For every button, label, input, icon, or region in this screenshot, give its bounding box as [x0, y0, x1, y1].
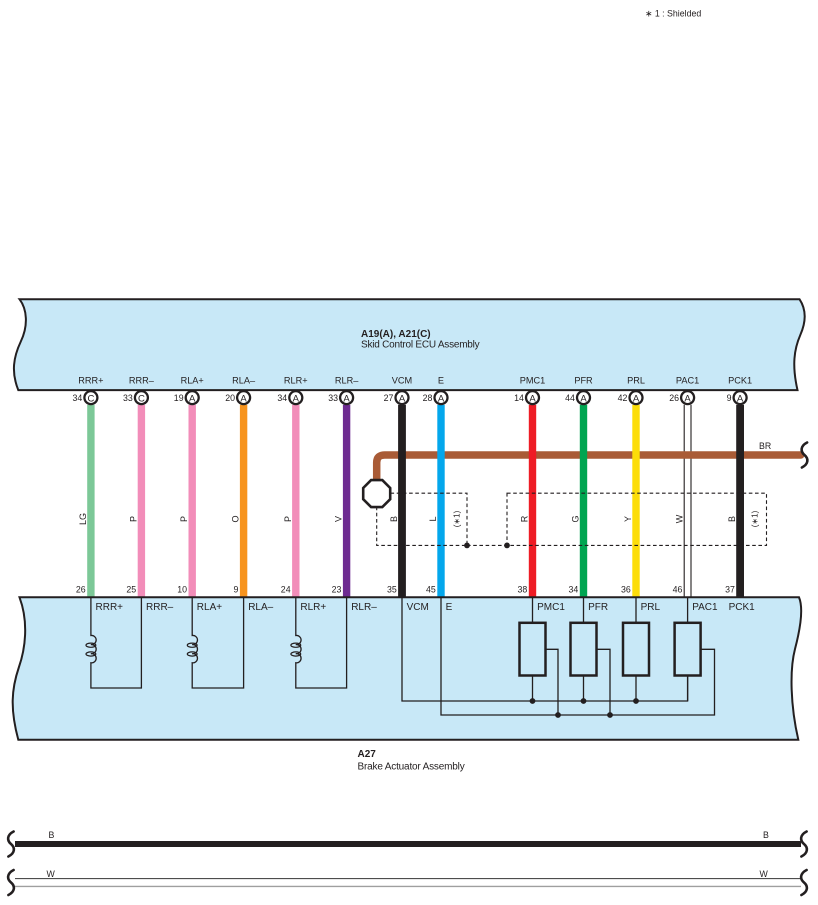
svg-text:Y: Y — [623, 516, 633, 522]
svg-text:PRL: PRL — [627, 376, 645, 386]
svg-text:37: 37 — [725, 584, 735, 594]
svg-text:9: 9 — [727, 393, 732, 403]
svg-text:A: A — [189, 393, 196, 404]
svg-text:24: 24 — [281, 584, 291, 594]
svg-text:35: 35 — [387, 584, 397, 594]
svg-text:RRR–: RRR– — [129, 376, 155, 386]
svg-text:V: V — [334, 516, 344, 522]
svg-text:RRR+: RRR+ — [78, 376, 103, 386]
svg-text:O: O — [231, 515, 241, 522]
svg-text:A: A — [684, 393, 691, 404]
svg-text:44: 44 — [565, 393, 575, 403]
svg-text:38: 38 — [518, 584, 528, 594]
svg-text:RLR–: RLR– — [351, 602, 377, 613]
svg-text:34: 34 — [569, 584, 579, 594]
svg-text:P: P — [179, 516, 189, 522]
svg-text:RLA+: RLA+ — [181, 376, 204, 386]
svg-text:9: 9 — [233, 584, 238, 594]
svg-text:PFR: PFR — [574, 376, 593, 386]
svg-text:A: A — [737, 393, 744, 404]
svg-text:28: 28 — [423, 393, 433, 403]
svg-text:VCM: VCM — [407, 602, 429, 613]
svg-text:W: W — [675, 514, 685, 523]
svg-text:W: W — [760, 869, 769, 879]
svg-text:C: C — [138, 393, 145, 404]
svg-text:RLR+: RLR+ — [300, 602, 326, 613]
svg-text:RLA–: RLA– — [248, 602, 273, 613]
svg-text:PRL: PRL — [641, 602, 661, 613]
svg-text:R: R — [520, 515, 530, 522]
svg-text:26: 26 — [669, 393, 679, 403]
svg-text:RRR+: RRR+ — [96, 602, 124, 613]
svg-text:PAC1: PAC1 — [676, 376, 699, 386]
svg-text:PAC1: PAC1 — [692, 602, 718, 613]
svg-text:B: B — [763, 830, 769, 840]
svg-text:RLA+: RLA+ — [197, 602, 222, 613]
svg-text:10: 10 — [177, 584, 187, 594]
svg-text:P: P — [283, 516, 293, 522]
svg-text:42: 42 — [618, 393, 628, 403]
svg-text:45: 45 — [426, 584, 436, 594]
svg-text:A: A — [438, 393, 445, 404]
svg-text:19: 19 — [174, 393, 184, 403]
svg-text:25: 25 — [126, 584, 136, 594]
svg-text:A: A — [293, 393, 300, 404]
svg-text:A: A — [240, 393, 247, 404]
svg-text:A19(A), A21(C): A19(A), A21(C) — [361, 329, 431, 340]
svg-text:14: 14 — [514, 393, 524, 403]
svg-text:RRR–: RRR– — [146, 602, 174, 613]
svg-text:27: 27 — [384, 393, 394, 403]
svg-text:E: E — [438, 376, 444, 386]
svg-text:A: A — [580, 393, 587, 404]
svg-text:RLR–: RLR– — [335, 376, 359, 386]
svg-text:PMC1: PMC1 — [537, 602, 565, 613]
svg-text:PCK1: PCK1 — [729, 602, 756, 613]
svg-text:L: L — [428, 516, 438, 521]
svg-text:G: G — [571, 515, 581, 522]
svg-text:A: A — [399, 393, 406, 404]
svg-text:A27: A27 — [358, 749, 377, 760]
svg-text:23: 23 — [332, 584, 342, 594]
svg-text:46: 46 — [673, 584, 683, 594]
svg-text:PCK1: PCK1 — [728, 376, 752, 386]
svg-text:PMC1: PMC1 — [520, 376, 546, 386]
svg-text:B: B — [49, 830, 55, 840]
svg-text:A: A — [633, 393, 640, 404]
svg-text:VCM: VCM — [392, 376, 412, 386]
svg-text:∗ 1 : Shielded: ∗ 1 : Shielded — [645, 9, 701, 19]
svg-text:33: 33 — [123, 393, 133, 403]
svg-text:B: B — [389, 516, 399, 522]
svg-text:C: C — [87, 393, 94, 404]
svg-text:RLR+: RLR+ — [284, 376, 308, 386]
svg-text:34: 34 — [277, 393, 287, 403]
svg-text:PFR: PFR — [588, 602, 608, 613]
svg-text:33: 33 — [328, 393, 338, 403]
svg-text:26: 26 — [76, 584, 86, 594]
svg-text:B: B — [727, 516, 737, 522]
svg-text:20: 20 — [225, 393, 235, 403]
svg-text:Skid Control ECU Assembly: Skid Control ECU Assembly — [361, 340, 480, 351]
svg-text:A: A — [343, 393, 350, 404]
svg-text:A: A — [529, 393, 536, 404]
svg-text:RLA–: RLA– — [232, 376, 256, 386]
svg-text:(∗1): (∗1) — [453, 510, 462, 527]
svg-text:34: 34 — [73, 393, 83, 403]
svg-text:E: E — [446, 602, 453, 613]
svg-text:BR: BR — [759, 441, 771, 451]
svg-text:LG: LG — [78, 513, 88, 525]
svg-text:36: 36 — [621, 584, 631, 594]
svg-text:(∗1): (∗1) — [751, 510, 760, 527]
svg-text:W: W — [47, 869, 56, 879]
svg-text:P: P — [128, 516, 138, 522]
svg-text:Brake Actuator Assembly: Brake Actuator Assembly — [358, 761, 465, 772]
